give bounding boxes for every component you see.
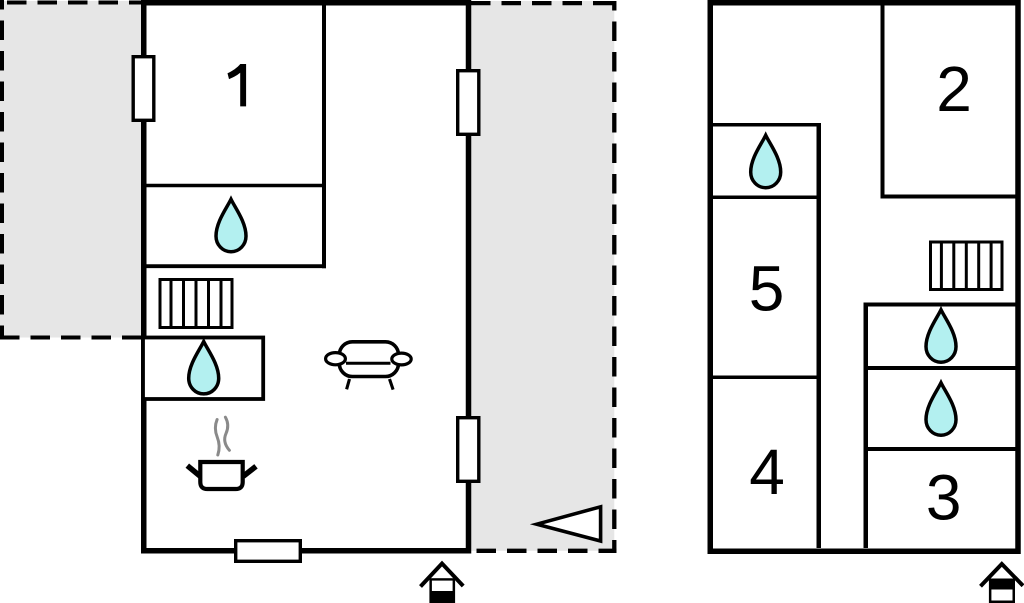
svg-text:3: 3 [926, 462, 962, 534]
svg-text:5: 5 [749, 253, 785, 325]
svg-text:4: 4 [749, 436, 785, 508]
svg-text:2: 2 [936, 53, 972, 125]
